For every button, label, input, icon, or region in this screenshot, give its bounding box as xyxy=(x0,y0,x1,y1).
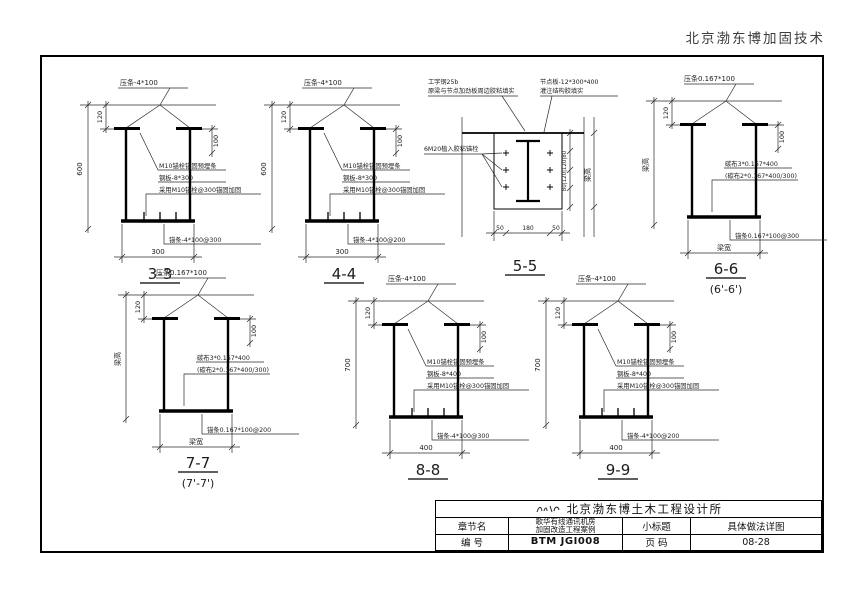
dim-b3: 50 xyxy=(552,225,560,232)
bottom-label: 锚条0.167*100@200 xyxy=(207,425,271,434)
section-title: 8-8 xyxy=(416,461,441,479)
section-7-7: 压条0.167*100 梁高 120 100 碳布3*0.167*400 (碳布… xyxy=(102,261,302,497)
subtitle-label: 小标题 xyxy=(622,518,690,534)
dim-width: 梁宽 xyxy=(717,243,731,252)
drawing-frame: 压条-4*100 600 120 100 M10锚栓锚固预埋条 钢板-8*300… xyxy=(40,55,824,553)
section-3-3: 压条-4*100 600 120 100 M10锚栓锚固预埋条 钢板-8*300… xyxy=(64,71,264,291)
project-name: 歌华有线通讯机房 加固改造工程案例 xyxy=(508,518,622,534)
dim-height: 600 xyxy=(260,162,268,175)
title-block: 北京渤东博土木工程设计所 章节名 歌华有线通讯机房 加固改造工程案例 小标题 具… xyxy=(435,500,822,551)
number-label: 编 号 xyxy=(436,535,508,550)
dim-width: 400 xyxy=(419,444,432,452)
chapter-label: 章节名 xyxy=(436,518,508,534)
firm-name: 北京渤东博土木工程设计所 xyxy=(567,501,723,517)
drawing-sheet: 北京渤东博加固技术 xyxy=(0,0,863,603)
subtitle-value: 具体做法详图 xyxy=(690,518,821,534)
note-3: 采用M10锚栓@300锚固加固 xyxy=(617,381,699,390)
dim-100: 100 xyxy=(778,131,786,143)
top-label: 压条0.167*100 xyxy=(684,74,735,83)
note-3: 采用M10锚栓@300锚固加固 xyxy=(159,185,241,194)
section-title: 9-9 xyxy=(606,461,631,479)
section-7-7-drawing: 压条0.167*100 梁高 120 100 碳布3*0.167*400 (碳布… xyxy=(102,261,302,493)
number-value: BTM JGI008 xyxy=(508,535,622,550)
note-2: 钢板-8*400 xyxy=(427,369,461,378)
top-label: 压条-4*100 xyxy=(578,274,616,283)
note-2: 钢板-8*300 xyxy=(159,173,193,182)
bottom-label: 锚条0.167*100@300 xyxy=(735,231,799,240)
section-6-6-drawing: 压条0.167*100 梁高 120 100 碳布3*0.167*400 (碳布… xyxy=(630,67,830,299)
note-3: 采用M10锚栓@300锚固加固 xyxy=(343,185,425,194)
section-title: 7-7 xyxy=(186,454,211,472)
header-brand: 北京渤东博加固技术 xyxy=(686,27,826,47)
dim-120: 120 xyxy=(364,307,372,319)
dim-height: 梁高 xyxy=(641,158,650,172)
section-3-3-drawing: 压条-4*100 600 120 100 M10锚栓锚固预埋条 钢板-8*300… xyxy=(64,71,264,287)
dim-height: 600 xyxy=(76,162,84,175)
page-value: 08-28 xyxy=(690,535,821,550)
beam-outline xyxy=(152,319,240,412)
top-label: 压条-4*100 xyxy=(120,78,158,87)
section-4-4: 压条-4*100 600 120 100 M10锚栓锚固预埋条 钢板-8*300… xyxy=(248,71,448,291)
title-block-firm-row: 北京渤东博土木工程设计所 xyxy=(436,501,821,517)
dim-height: 梁高 xyxy=(113,352,122,366)
note-topright-2: 灌注结构胶填实 xyxy=(540,87,583,95)
title-block-row-1: 章节名 歌华有线通讯机房 加固改造工程案例 小标题 具体做法详图 xyxy=(436,517,821,534)
firm-logo-icon xyxy=(535,503,561,515)
project-line-2: 加固改造工程案例 xyxy=(536,526,596,534)
dim-right-outer: 梁高 xyxy=(583,168,592,182)
top-label: 压条0.167*100 xyxy=(156,268,207,277)
note-topleft-1: 工字钢25b xyxy=(428,78,458,86)
dim-width: 300 xyxy=(151,248,164,256)
note-3: 采用M10锚栓@300锚固加固 xyxy=(427,381,509,390)
dim-right-chain: 80|120|120|80 xyxy=(562,150,568,191)
note-1: M10锚栓锚固预埋条 xyxy=(343,161,401,170)
dim-b2: 180 xyxy=(522,225,534,232)
note-1: M10锚栓锚固预埋条 xyxy=(159,161,217,170)
page-label: 页 码 xyxy=(622,535,690,550)
bottom-label: 锚条-4*100@300 xyxy=(437,431,489,440)
dim-120: 120 xyxy=(662,107,670,119)
section-9-9-drawing: 压条-4*100 700 120 100 M10锚栓锚固预埋条 钢板-8*400… xyxy=(522,267,722,483)
dim-120: 120 xyxy=(96,111,104,123)
note-left: 6M20植入胶粘锚栓 xyxy=(424,145,478,153)
section-4-4-drawing: 压条-4*100 600 120 100 M10锚栓锚固预埋条 钢板-8*300… xyxy=(248,71,448,287)
section-8-8: 压条-4*100 700 120 100 M10锚栓锚固预埋条 钢板-8*400… xyxy=(332,267,532,487)
dim-100: 100 xyxy=(670,331,678,343)
title-block-row-2: 编 号 BTM JGI008 页 码 08-28 xyxy=(436,534,821,550)
dim-height: 700 xyxy=(534,358,542,371)
dim-120: 120 xyxy=(280,111,288,123)
note-topleft-2: 原梁与节点加劲板周边胶粘填实 xyxy=(428,87,515,95)
note-2: (碳布2*0.167*400/300) xyxy=(197,365,269,374)
dim-b1: 50 xyxy=(496,225,504,232)
note-1: 碳布3*0.167*400 xyxy=(725,159,778,168)
note-2: (碳布2*0.167*400/300) xyxy=(725,171,797,180)
section-8-8-drawing: 压条-4*100 700 120 100 M10锚栓锚固预埋条 钢板-8*400… xyxy=(332,267,532,483)
top-label: 压条-4*100 xyxy=(388,274,426,283)
section-5-5-drawing: 工字钢25b 原梁与节点加劲板周边胶粘填实 节点板-12*300*400 灌注结… xyxy=(422,75,632,283)
dim-width: 300 xyxy=(335,248,348,256)
dim-height: 700 xyxy=(344,358,352,371)
bottom-label: 锚条-4*100@300 xyxy=(169,235,221,244)
bottom-label: 锚条-4*100@200 xyxy=(353,235,405,244)
beam-outline xyxy=(680,125,768,218)
note-topright-1: 节点板-12*300*400 xyxy=(540,78,599,86)
note-2: 钢板-8*300 xyxy=(343,173,377,182)
note-2: 钢板-8*400 xyxy=(617,369,651,378)
top-label: 压条-4*100 xyxy=(304,78,342,87)
note-1: 碳布3*0.167*400 xyxy=(197,353,250,362)
dim-100: 100 xyxy=(396,135,404,147)
section-subtitle: (7'-7') xyxy=(182,477,215,490)
bottom-label: 锚条-4*100@200 xyxy=(627,431,679,440)
note-1: M10锚栓锚固预埋条 xyxy=(617,357,675,366)
note-1: M10锚栓锚固预埋条 xyxy=(427,357,485,366)
dim-width: 400 xyxy=(609,444,622,452)
dim-width: 梁宽 xyxy=(189,437,203,446)
dim-100: 100 xyxy=(250,325,258,337)
dim-100: 100 xyxy=(480,331,488,343)
section-5-5: 工字钢25b 原梁与节点加劲板周边胶粘填实 节点板-12*300*400 灌注结… xyxy=(422,75,632,287)
dim-120: 120 xyxy=(134,301,142,313)
dim-100: 100 xyxy=(212,135,220,147)
dim-120: 120 xyxy=(554,307,562,319)
section-9-9: 压条-4*100 700 120 100 M10锚栓锚固预埋条 钢板-8*400… xyxy=(522,267,722,487)
